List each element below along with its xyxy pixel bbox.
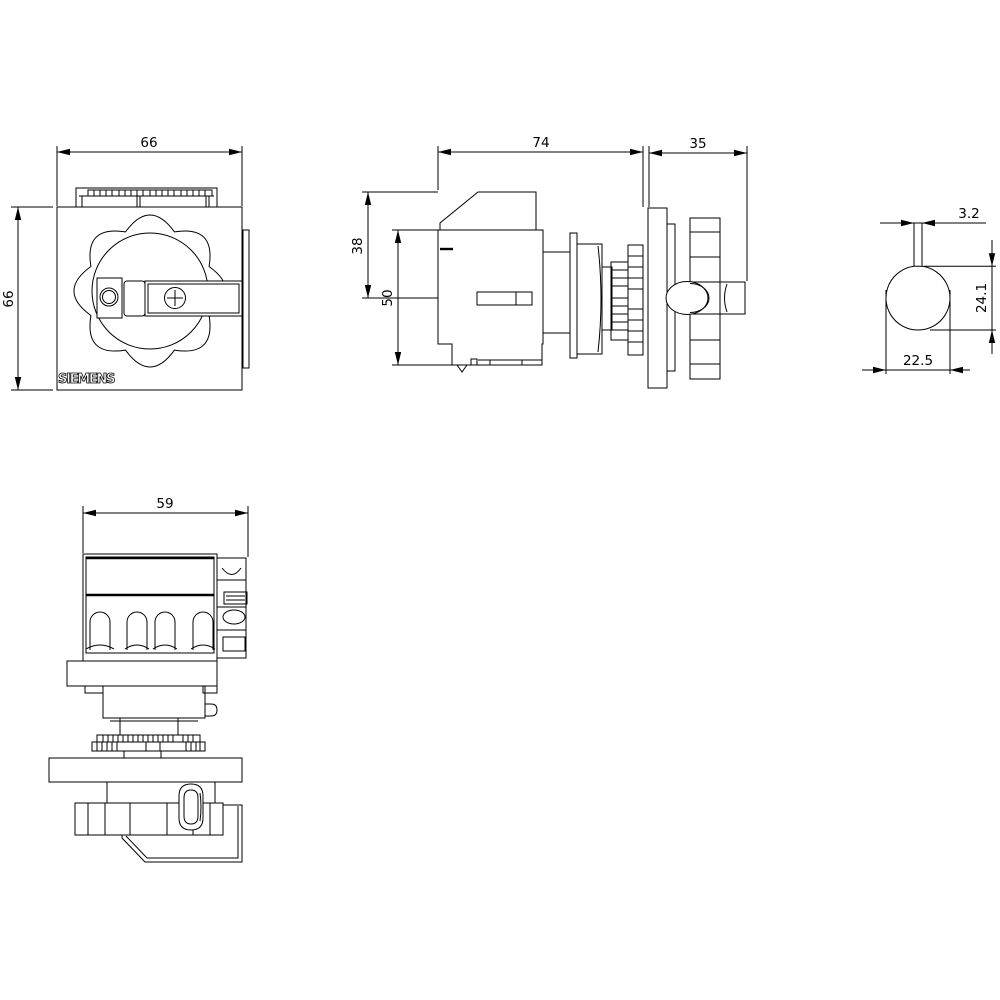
shaft-cutout-circle: [886, 266, 950, 330]
terminal-strip: [76, 188, 217, 207]
toothed-ring: [92, 735, 205, 751]
flange: [570, 233, 577, 358]
handle-neck: [124, 281, 145, 316]
dim-label-across-flats: 22.5: [903, 353, 933, 369]
switch-body-side: [438, 230, 543, 365]
siemens-logo: SIEMENS: [58, 372, 115, 387]
dim-label-front-width: 66: [140, 135, 157, 151]
screw-icon: [165, 288, 186, 309]
dim-label-flat-height: 24.1: [974, 283, 990, 313]
shaft-detail-view: 3.2 24.1 22.5: [862, 206, 996, 374]
dim-front-height: 66: [1, 207, 53, 390]
handle-end-cap: [720, 282, 745, 314]
terminal-clamps: [86, 612, 215, 650]
handle-bar: [145, 281, 242, 316]
label-window: [477, 292, 532, 305]
dim-label-upper-height: 38: [350, 237, 366, 254]
mounting-plate-side: [648, 208, 667, 388]
mounting-plate-bottom: [49, 758, 242, 782]
dim-flat-height: 24.1: [924, 240, 996, 354]
padlock-shackle: [179, 784, 203, 830]
dim-bottom-width: 59: [83, 496, 248, 557]
dim-label-bottom-width: 59: [156, 496, 173, 512]
front-view: SIEMENS 66 66: [1, 135, 249, 390]
dim-side-upper-height: 38: [350, 192, 438, 298]
drawing-sheet: SIEMENS 66 66: [0, 0, 1000, 1000]
padlock-plate: [97, 278, 122, 318]
dim-label-handle-depth: 35: [689, 136, 706, 152]
bottom-view: 59: [49, 496, 248, 862]
ribbed-coupler: [611, 245, 643, 355]
dim-side-body-depth: 74: [438, 135, 643, 207]
dim-across-flats: 22.5: [862, 353, 970, 373]
dim-slot-width: 3.2: [880, 206, 986, 226]
dim-label-front-height: 66: [1, 290, 17, 307]
dim-label-slot-width: 3.2: [958, 206, 979, 222]
dim-label-total-height: 50: [380, 289, 396, 306]
bell-housing: [577, 244, 602, 354]
side-view: 74 35 38 50: [350, 135, 747, 388]
accessory-column: [217, 558, 247, 658]
dim-label-body-depth: 74: [532, 135, 549, 151]
dimensional-drawing: SIEMENS 66 66: [0, 0, 1000, 1000]
upper-block: [440, 192, 536, 230]
side-tab: [243, 230, 249, 368]
